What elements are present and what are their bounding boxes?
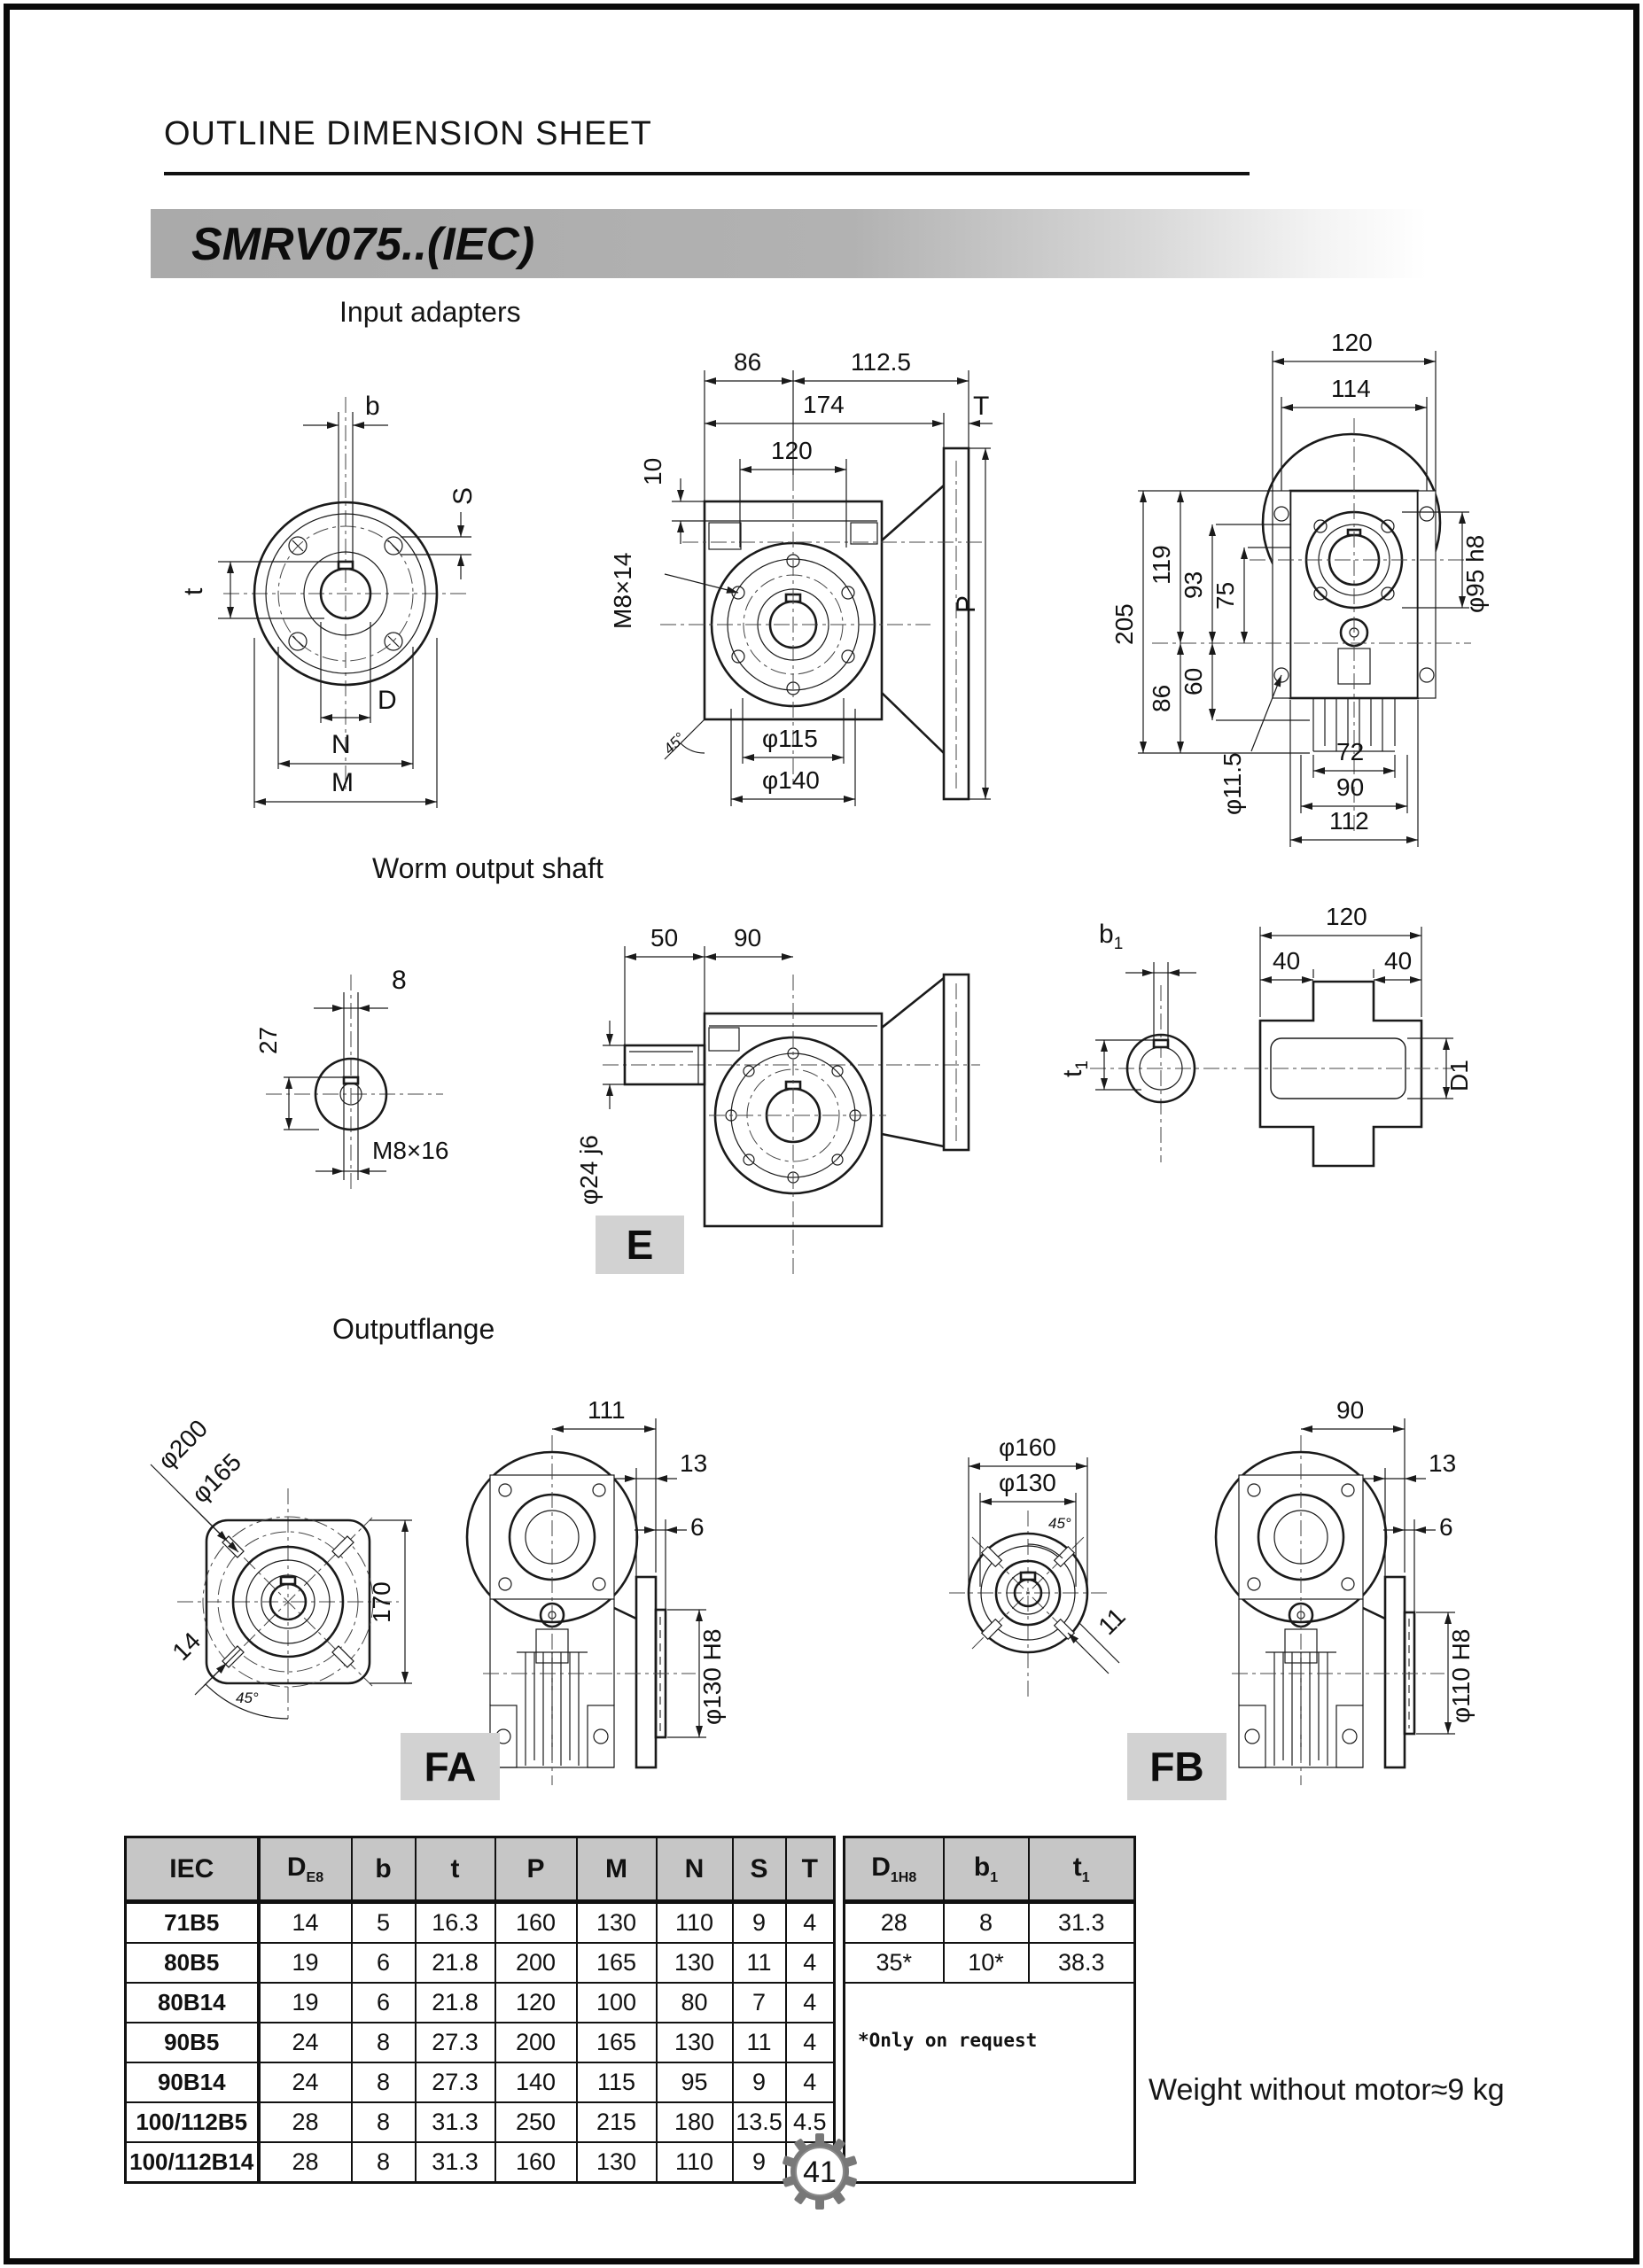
table-cell: 11: [733, 1943, 786, 1983]
table-cell: 110: [657, 1902, 733, 1944]
dim-114: 114: [1331, 375, 1371, 402]
table-cell: 100: [577, 1983, 657, 2023]
table-cell: 8: [352, 2062, 416, 2102]
dim-d110: φ110 H8: [1447, 1629, 1475, 1723]
dim-13: 13: [680, 1449, 707, 1477]
table-cell: 130: [577, 1902, 657, 1944]
table-cell: 38.3: [1029, 1943, 1135, 1983]
table-note: *Only on request: [845, 1983, 1135, 2183]
dim-p: P: [952, 595, 981, 613]
drawing-input-adapter-side-view: 86 112.5 174 T 120 10 M8×14 P φ115 φ140 …: [576, 337, 984, 833]
table-row: 100/112B5 28 8 31.3 250 215 180 13.5 4.5: [126, 2102, 835, 2142]
table-cell: 160: [495, 2142, 577, 2183]
col-header-b1: b1: [944, 1837, 1029, 1902]
model-name: SMRV075..(IEC): [191, 218, 534, 271]
col-header-t1: t1: [1029, 1837, 1135, 1902]
dim-90: 90: [1336, 1396, 1364, 1424]
drawing-fb-front-view: φ160 φ130 45° 11: [935, 1413, 1210, 1714]
table-row: 80B14 19 6 21.8 120 100 80 7 4: [126, 1983, 835, 2023]
dim-120: 120: [771, 437, 813, 464]
table-cell: 120: [495, 1983, 577, 2023]
dim-14: 14: [167, 1627, 206, 1666]
dim-d130: φ130 H8: [698, 1629, 726, 1725]
table-cell: 4: [786, 1983, 835, 2023]
dim-40a: 40: [1273, 947, 1300, 975]
dim-m: M: [331, 768, 354, 797]
table-cell: 27.3: [416, 2062, 495, 2102]
table-cell: 24: [259, 2023, 352, 2062]
table-header-row: D1H8 b1 t1: [845, 1837, 1135, 1902]
table-cell: 8: [352, 2023, 416, 2062]
col-header-t: t: [416, 1837, 495, 1902]
drawing-worm-shaft-end-view: 8 27 M8×16: [239, 930, 487, 1196]
table-cell: 100/112B14: [126, 2142, 259, 2183]
drawing-hollow-shaft-detail: b1 t1 120 40 40 D1: [1055, 904, 1489, 1196]
table-cell: 4: [786, 2062, 835, 2102]
dim-d130: φ130: [999, 1469, 1056, 1496]
table-cell: 11: [733, 2023, 786, 2062]
table-cell: 7: [733, 1983, 786, 2023]
dimension-table: IEC DE8 b t P M N S T 71B5 14 5 16.3 160…: [124, 1836, 1136, 2184]
section-output-flange: Outputflange: [332, 1313, 494, 1346]
dim-13: 13: [1429, 1449, 1456, 1477]
dim-111: 111: [588, 1396, 626, 1424]
table-cell: 19: [259, 1943, 352, 1983]
table-cell: 14: [259, 1902, 352, 1944]
table-cell: 35*: [845, 1943, 944, 1983]
dim-d200: φ200: [152, 1414, 213, 1474]
weight-note: Weight without motor≈9 kg: [1149, 2073, 1505, 2108]
table-row: 90B5 24 8 27.3 200 165 130 11 4: [126, 2023, 835, 2062]
table-cell: 28: [259, 2142, 352, 2183]
dim-d140: φ140: [762, 766, 820, 794]
table-cell: 71B5: [126, 1902, 259, 1944]
col-header-d: DE8: [259, 1837, 352, 1902]
table-cell: 6: [352, 1983, 416, 2023]
dim-72: 72: [1336, 738, 1364, 765]
dim-112: 112: [1329, 807, 1369, 835]
dim-b1: b1: [1099, 920, 1123, 953]
section-input-adapters: Input adapters: [339, 296, 521, 329]
table-cell: 31.3: [416, 2102, 495, 2142]
col-header-iec: IEC: [126, 1837, 259, 1902]
table-cell: 160: [495, 1902, 577, 1944]
dim-86: 86: [734, 348, 761, 376]
table-row: 90B14 24 8 27.3 140 115 95 9 4: [126, 2062, 835, 2102]
dim-119: 119: [1148, 545, 1175, 585]
table-cell: 28: [259, 2102, 352, 2142]
catalog-page: OUTLINE DIMENSION SHEET SMRV075..(IEC) I…: [0, 0, 1643, 2268]
view-tag-fb: FB: [1127, 1733, 1226, 1800]
dim-8: 8: [392, 966, 407, 995]
table-cell: 31.3: [416, 2142, 495, 2183]
dim-40b: 40: [1384, 947, 1412, 975]
table-header-row: IEC DE8 b t P M N S T: [126, 1837, 835, 1902]
drawing-fa-side-view: 111 13 6 φ130 H8: [483, 1386, 864, 1794]
drawing-input-adapter-back-view: 120 114 205 119 93 75 86 60 φ95 h8 φ11.5…: [1117, 337, 1507, 850]
dim-10: 10: [639, 458, 666, 485]
dim-d: D: [378, 686, 397, 715]
table-cell: 80: [657, 1983, 733, 2023]
table-cell: 80B14: [126, 1983, 259, 2023]
view-tag-fa: FA: [401, 1733, 500, 1800]
dim-11: 11: [1093, 1603, 1130, 1640]
dim-50: 50: [650, 924, 678, 951]
dim-86: 86: [1148, 685, 1175, 712]
title-underline: [164, 172, 1250, 175]
drawing-input-adapter-front-view: b S t D N M: [160, 372, 514, 833]
dim-d24: φ24 j6: [575, 1135, 603, 1205]
dim-d165: φ165: [186, 1448, 246, 1508]
dim-b: b: [365, 392, 380, 421]
view-tag-e: E: [596, 1216, 684, 1274]
table-cell: 4: [786, 2023, 835, 2062]
dim-27: 27: [254, 1027, 282, 1054]
table-row: 35* 10* 38.3: [845, 1943, 1135, 1983]
table-cell: 90B5: [126, 2023, 259, 2062]
col-header-p: P: [495, 1837, 577, 1902]
dim-45deg: 45°: [660, 729, 689, 757]
table-cell: 6: [352, 1943, 416, 1983]
table-cell: 9: [733, 1902, 786, 1944]
page-number-gear: 41: [780, 2132, 860, 2211]
dim-d115: φ115: [762, 725, 818, 752]
dim-d160: φ160: [999, 1433, 1056, 1461]
dim-170: 170: [368, 1581, 395, 1623]
table-cell: 21.8: [416, 1983, 495, 2023]
drawing-fa-front-view: φ200 φ165 170 14 45°: [97, 1364, 487, 1781]
table-cell: 115: [577, 2062, 657, 2102]
dim-6: 6: [690, 1513, 705, 1541]
table-cell: 8: [352, 2142, 416, 2183]
table-cell: 21.8: [416, 1943, 495, 1983]
table-cell: 9: [733, 2142, 786, 2183]
col-header-T: T: [786, 1837, 835, 1902]
dim-90: 90: [734, 924, 761, 951]
table-cell: 4: [786, 1943, 835, 1983]
model-banner: SMRV075..(IEC): [151, 209, 1427, 278]
dim-n: N: [331, 730, 351, 759]
col-header-s: S: [733, 1837, 786, 1902]
table-cell: 5: [352, 1902, 416, 1944]
table-cell: 215: [577, 2102, 657, 2142]
col-header-b: b: [352, 1837, 416, 1902]
table-row: 100/112B14 28 8 31.3 160 130 110 9 4.5: [126, 2142, 835, 2183]
table-cell: 28: [845, 1902, 944, 1944]
dim-75: 75: [1211, 582, 1239, 610]
table-row: 80B5 19 6 21.8 200 165 130 11 4: [126, 1943, 835, 1983]
dim-s: S: [448, 487, 478, 505]
table-cell: 130: [657, 1943, 733, 1983]
dim-112_5: 112.5: [851, 348, 911, 376]
dim-d11_5: φ11.5: [1219, 752, 1246, 815]
table-cell: 16.3: [416, 1902, 495, 1944]
dim-t: t: [179, 587, 208, 595]
dim-93: 93: [1180, 571, 1207, 599]
table-cell: 100/112B5: [126, 2102, 259, 2142]
page-number: 41: [803, 2155, 837, 2189]
col-header-m: M: [577, 1837, 657, 1902]
dim-t1: t1: [1058, 1060, 1092, 1077]
dim-d95: φ95 h8: [1461, 535, 1489, 613]
dim-m8x16: M8×16: [372, 1137, 448, 1164]
table-cell: 165: [577, 1943, 657, 1983]
iec-dimension-table-left: IEC DE8 b t P M N S T 71B5 14 5 16.3 160…: [124, 1836, 836, 2184]
table-cell: 8: [944, 1902, 1029, 1944]
table-cell: 31.3: [1029, 1902, 1135, 1944]
col-header-d1: D1H8: [845, 1837, 944, 1902]
table-cell: 130: [657, 2023, 733, 2062]
table-cell: 200: [495, 1943, 577, 1983]
dim-45deg: 45°: [236, 1689, 259, 1706]
dim-205: 205: [1110, 603, 1138, 645]
table-cell: 140: [495, 2062, 577, 2102]
table-cell: 130: [577, 2142, 657, 2183]
table-cell: 27.3: [416, 2023, 495, 2062]
table-cell: 200: [495, 2023, 577, 2062]
table-cell: 8: [352, 2102, 416, 2142]
table-cell: 19: [259, 1983, 352, 2023]
table-cell: 250: [495, 2102, 577, 2142]
dim-90: 90: [1336, 773, 1364, 801]
table-row: 71B5 14 5 16.3 160 130 110 9 4: [126, 1902, 835, 1944]
col-header-n: N: [657, 1837, 733, 1902]
dim-T: T: [973, 392, 989, 421]
dim-60: 60: [1180, 668, 1207, 695]
table-cell: 9: [733, 2062, 786, 2102]
table-cell: 110: [657, 2142, 733, 2183]
table-cell: 80B5: [126, 1943, 259, 1983]
dim-6: 6: [1439, 1513, 1453, 1541]
dim-174: 174: [803, 391, 845, 418]
table-cell: 10*: [944, 1943, 1029, 1983]
table-cell: 4: [786, 1902, 835, 1944]
table-cell: 13.5: [733, 2102, 786, 2142]
dim-120: 120: [1331, 329, 1373, 356]
table-cell: 24: [259, 2062, 352, 2102]
table-cell: 95: [657, 2062, 733, 2102]
dim-m8x14: M8×14: [609, 553, 636, 629]
table-row: 28 8 31.3: [845, 1902, 1135, 1944]
table-cell: 90B14: [126, 2062, 259, 2102]
iec-dimension-table-right: D1H8 b1 t1 28 8 31.3 35* 10* 38.3 *Only …: [843, 1836, 1136, 2184]
dim-120: 120: [1326, 903, 1367, 930]
drawing-fb-side-view: 90 13 6 φ110 H8: [1232, 1386, 1613, 1794]
page-title: OUTLINE DIMENSION SHEET: [164, 115, 652, 153]
table-cell: 165: [577, 2023, 657, 2062]
dim-45deg: 45°: [1048, 1515, 1071, 1532]
section-worm-output-shaft: Worm output shaft: [372, 852, 603, 885]
table-cell: 180: [657, 2102, 733, 2142]
dim-d1: D1: [1445, 1060, 1473, 1091]
